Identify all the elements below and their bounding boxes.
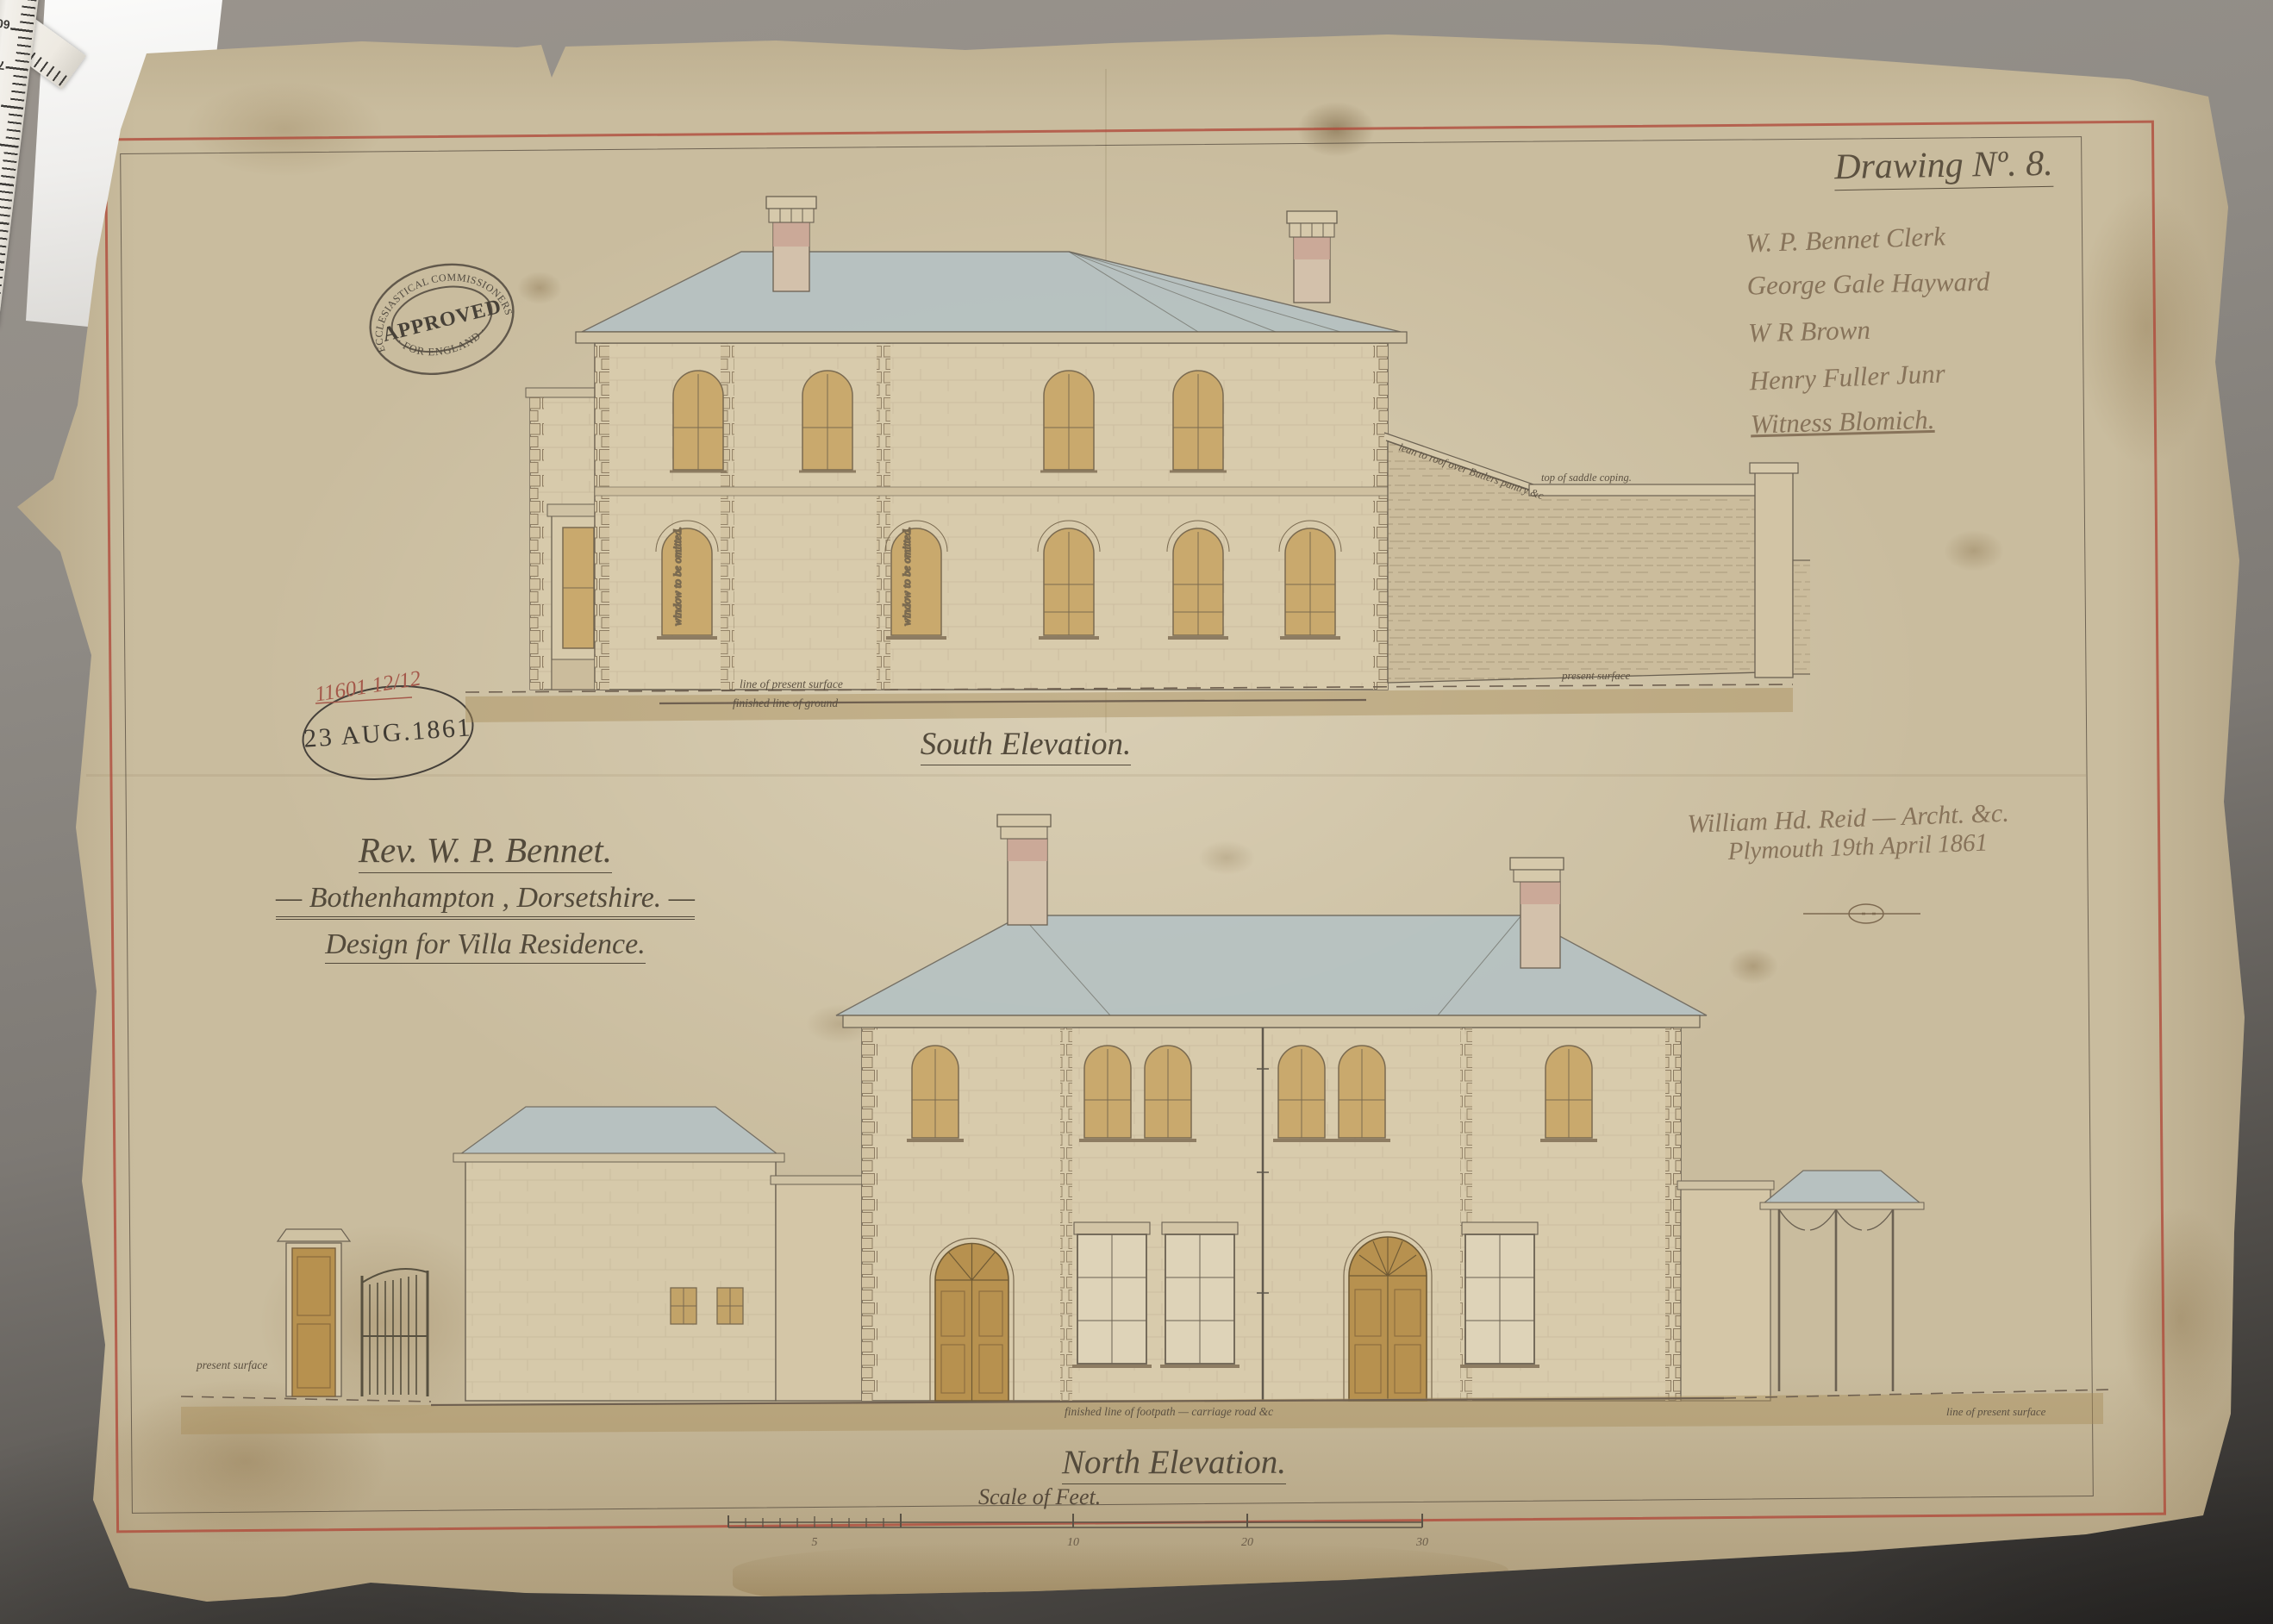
north-caption-text: North Elevation. <box>1062 1443 1286 1484</box>
finished-ground-note: finished line of ground <box>733 696 838 709</box>
drawing-sheet: ECCLESIASTICAL COMMISSIONERS · FOR ENGLA… <box>0 0 2273 1624</box>
scale-bar: 5 10 20 30 <box>715 1507 1474 1567</box>
north-chimney-left <box>997 815 1051 925</box>
ruler-number: 60 <box>0 16 17 33</box>
date-stamp: 23 AUG.1861 11601 12/12 <box>283 652 490 790</box>
north-veranda <box>1677 1171 1924 1401</box>
south-roof <box>576 252 1407 343</box>
present-surface-note: present surface <box>196 1359 267 1371</box>
south-garden-wall: lean to roof over Butlers pantry &c top … <box>1384 433 1810 683</box>
north-elevation-caption: North Elevation. <box>1010 1443 1338 1484</box>
scale-tick-label: 5 <box>812 1536 818 1549</box>
north-roof <box>836 915 1707 1027</box>
scale-tick-label: 30 <box>1415 1536 1428 1549</box>
coping-note: top of saddle coping. <box>1541 472 1632 484</box>
present-surface-note: line of present surface <box>1946 1405 2046 1418</box>
south-chimney-left <box>766 197 816 291</box>
window-omitted-note: window to be omitted. <box>900 527 913 626</box>
present-surface-note: present surface <box>1561 669 1631 682</box>
drawing-number-text: Drawing Nº. 8. <box>1834 143 2053 191</box>
window-omitted-note: window to be omitted. <box>671 527 684 626</box>
north-garden-entrance-door <box>1344 1232 1432 1401</box>
scale-tick-label: 20 <box>1241 1536 1253 1549</box>
scale-tick-label: 10 <box>1067 1536 1079 1549</box>
date-stamp-text: 23 AUG.1861 <box>303 713 473 753</box>
north-front-door <box>930 1239 1014 1402</box>
photographed-drawing: 60 70 80 90 100 110 120 <box>0 0 2273 1624</box>
north-service-wing <box>453 1107 865 1401</box>
south-caption-text: South Elevation. <box>921 726 1132 765</box>
garden-door <box>278 1229 350 1396</box>
south-elevation-drawing: window to be omitted. window to be omitt… <box>465 190 1810 759</box>
south-elevation-caption: South Elevation. <box>875 726 1177 765</box>
south-chimney-right <box>1287 211 1337 303</box>
footpath-note: finished line of footpath — carriage roa… <box>1065 1405 1273 1418</box>
north-elevation-drawing: present surface finished line of footpat… <box>155 810 2129 1440</box>
iron-gate <box>362 1269 428 1396</box>
drawing-number: Drawing Nº. 8. <box>1797 142 2091 191</box>
present-surface-note: line of present surface <box>740 678 843 690</box>
ruler-number: 70 <box>0 57 12 74</box>
